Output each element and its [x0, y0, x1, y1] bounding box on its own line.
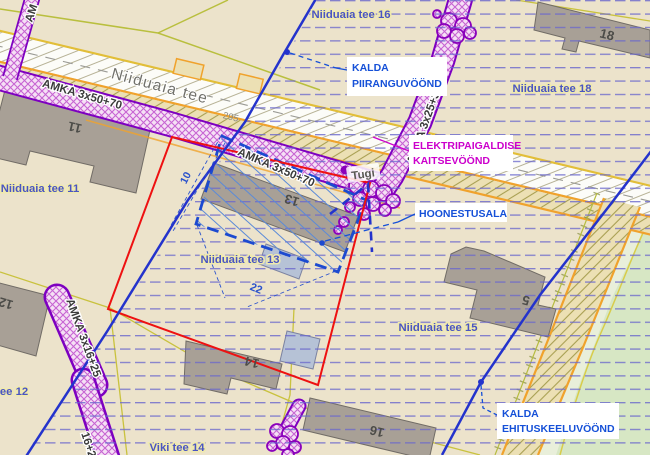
- parcel-label-tee13: Niiduaia tee 13: [200, 254, 279, 266]
- parcel-label-tee16: Niiduaia tee 16: [311, 9, 390, 21]
- parcel-label-tee15: Niiduaia tee 15: [398, 322, 477, 334]
- callout-kalda-piirang-line1: KALDA: [352, 62, 389, 74]
- callout-kalda-ehitus-line2: EHITUSKEELUVÖÖND: [502, 422, 615, 435]
- parcel-label-tee18: Niiduaia tee 18: [512, 83, 591, 95]
- callout-elektri-line2: KAITSEVÖÖND: [413, 154, 490, 167]
- callout-hoonestusala-line1: HOONESTUSALA: [419, 208, 508, 220]
- map-canvas: 10 22 Niiduaia tee 295 AMKA 3x50+70 AMKA…: [0, 0, 650, 455]
- plan-drawing: 10 22 Niiduaia tee 295 AMKA 3x50+70 AMKA…: [0, 0, 650, 455]
- callout-elektri-line1: ELEKTRIPAIGALDISE: [413, 140, 521, 152]
- leader-dot-piirang: [284, 49, 290, 55]
- callout-kalda-ehitus-line1: KALDA: [502, 408, 539, 420]
- callout-kalda-piirang-line2: PIIRANGUVÖÖND: [352, 77, 442, 90]
- parcel-label-tee11: Niiduaia tee 11: [1, 183, 80, 195]
- leader-dot-ehitus: [478, 379, 484, 385]
- parcel-label-tee12: ee 12: [0, 386, 28, 398]
- parcel-label-viki14: Viki tee 14: [149, 442, 205, 454]
- leader-dot-hoonestus: [319, 240, 325, 246]
